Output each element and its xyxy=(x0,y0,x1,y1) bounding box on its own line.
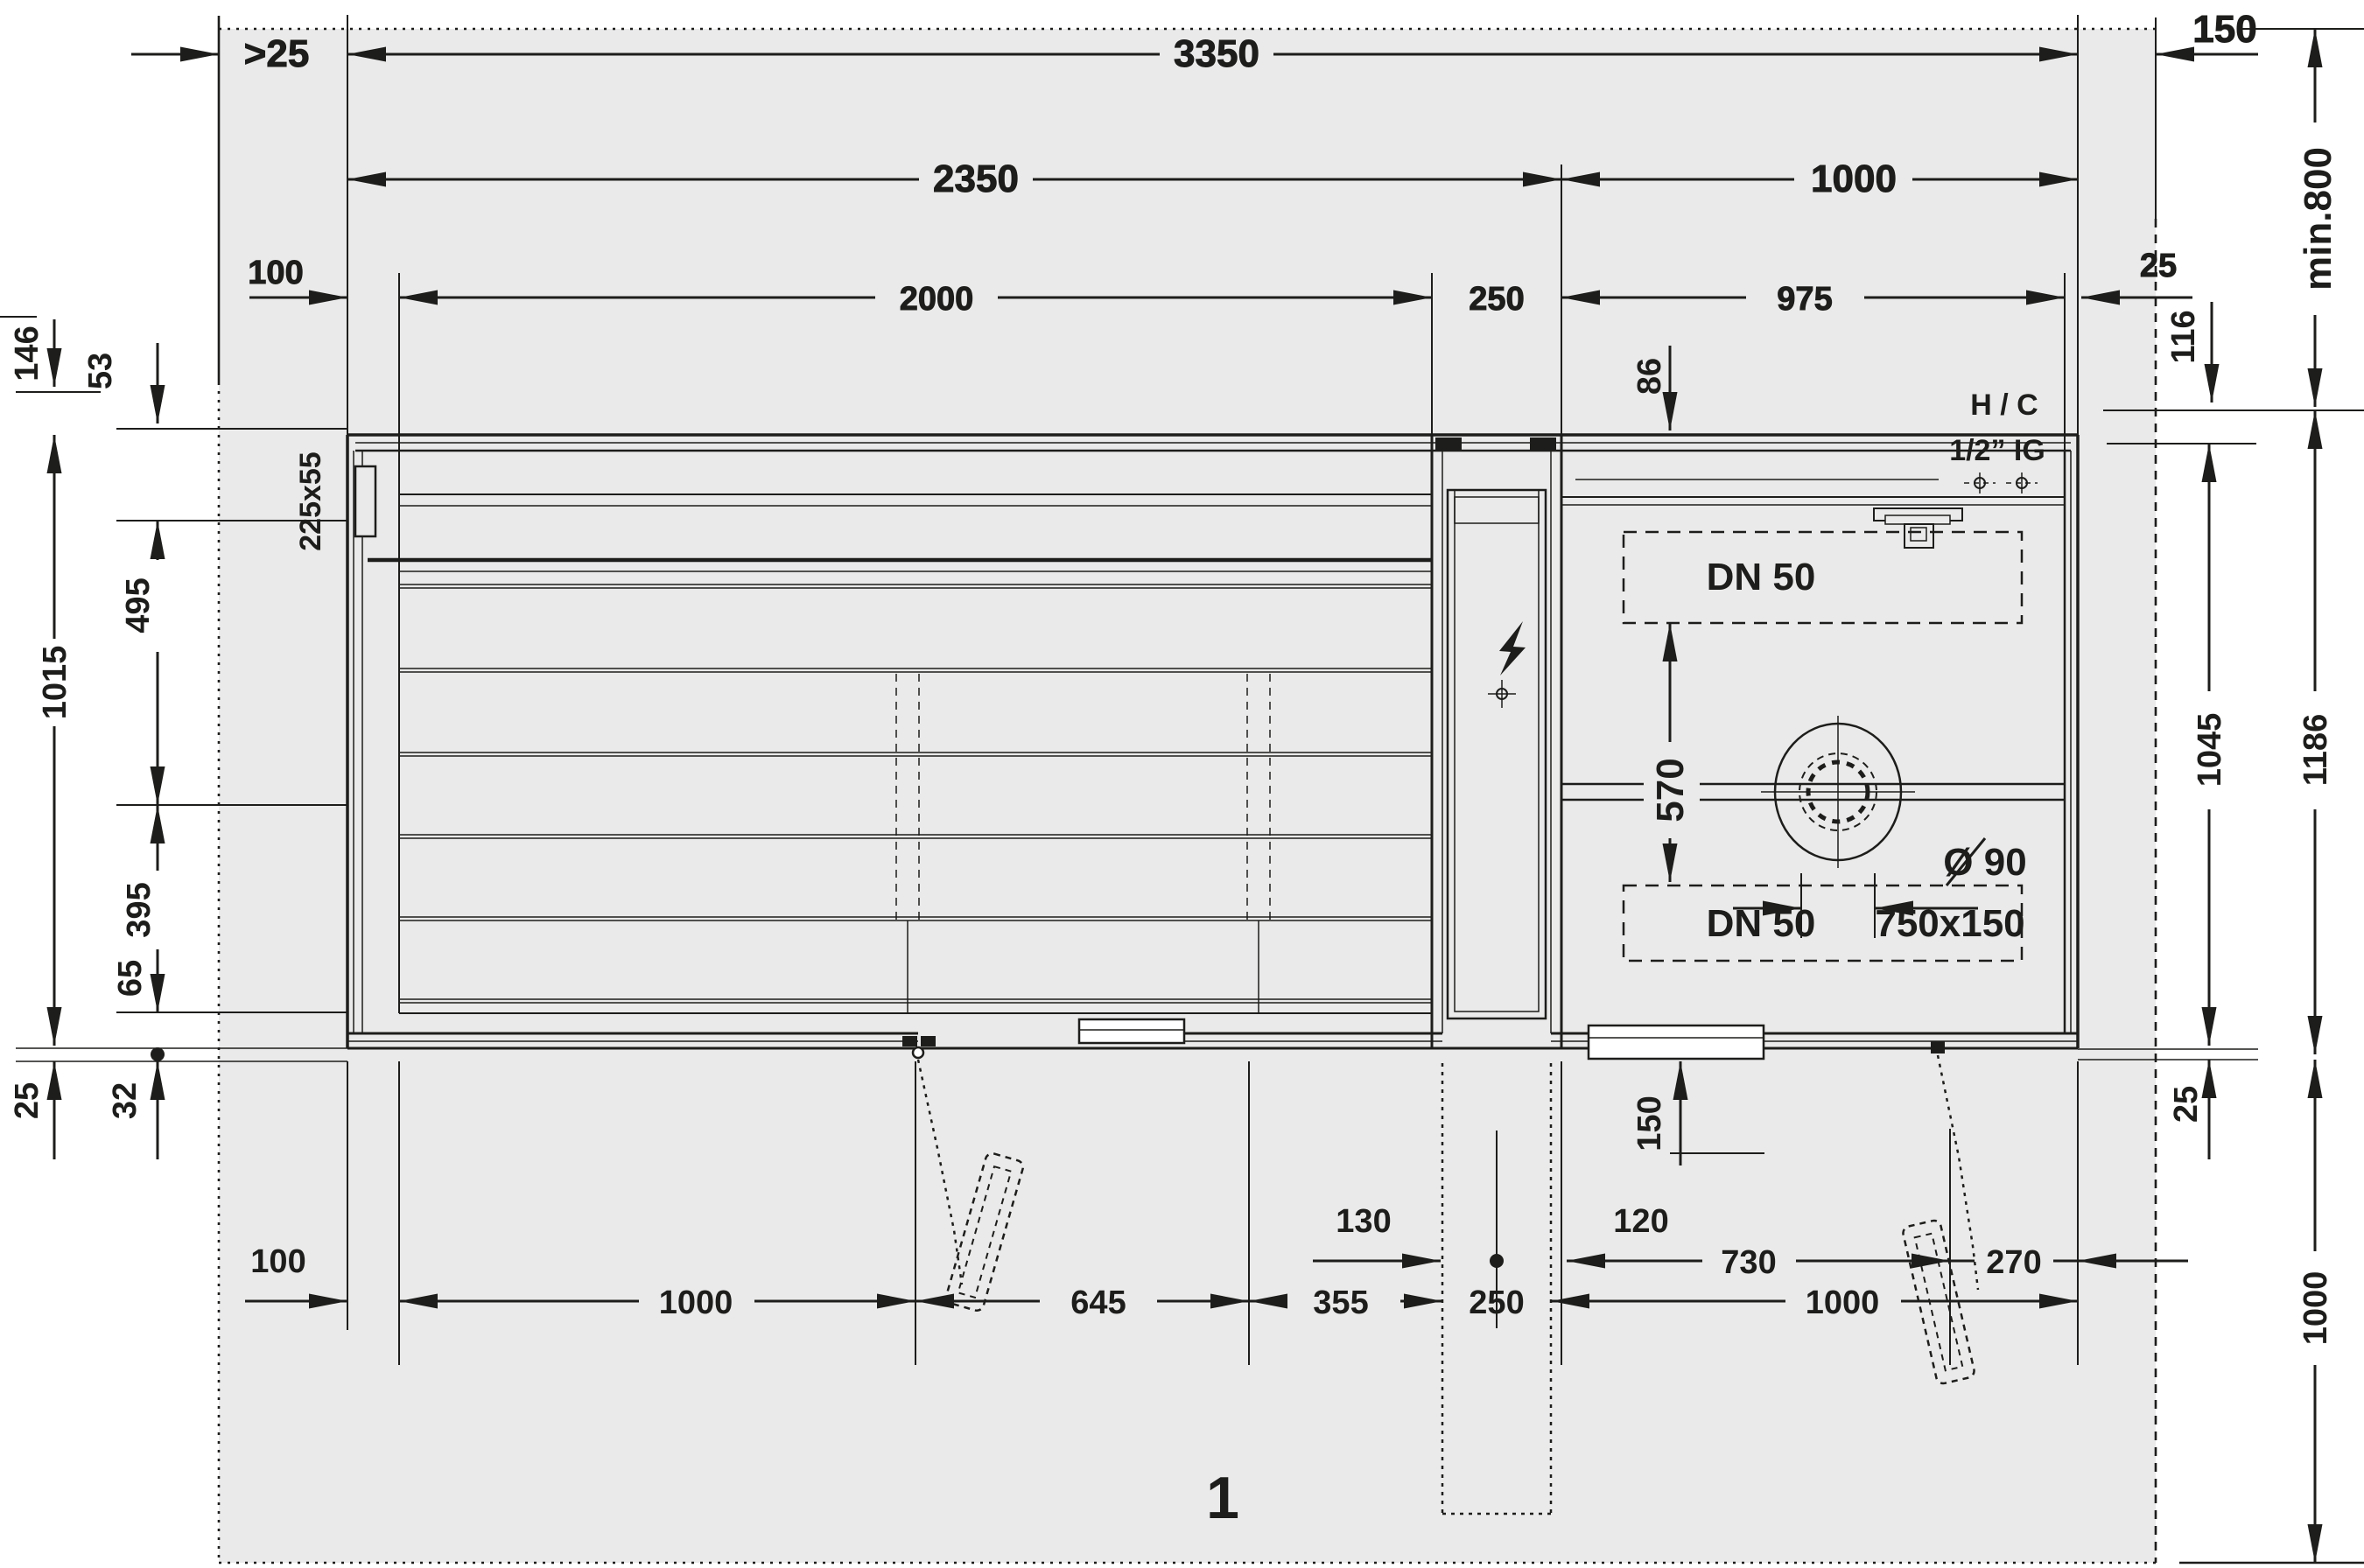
door-anchor-right xyxy=(1530,437,1556,450)
sauna-hinge-block-left xyxy=(902,1036,917,1046)
shower-hinge-block xyxy=(1931,1041,1945,1053)
dim-730-label: 730 xyxy=(1721,1244,1776,1281)
dim-32-label: 32 xyxy=(107,1082,144,1119)
sauna-door-threshold xyxy=(1079,1019,1184,1043)
dim-355-label: 355 xyxy=(1313,1284,1368,1321)
dim-1015-label: 1015 xyxy=(37,646,74,720)
dim-100b-label: 100 xyxy=(250,1243,305,1280)
dim-shower-inner-label: 975 xyxy=(1777,281,1832,318)
dim-495-label: 495 xyxy=(120,577,157,633)
figure-number: 1 xyxy=(1206,1465,1239,1531)
dim-shower-width-label: 1000 xyxy=(1811,157,1897,200)
dim-645-label: 645 xyxy=(1070,1284,1126,1321)
dim-25l-label: 25 xyxy=(9,1082,46,1119)
supply-label-ig: 1/2” IG xyxy=(1949,434,2045,467)
dim-120-label: 120 xyxy=(1613,1203,1668,1240)
drawing-page: >25 3350 150 2350 1000 100 2000 250 975 … xyxy=(0,0,2364,1568)
dim-total-width-label: 3350 xyxy=(1174,32,1259,75)
drain-zone-bottom-size: 750x150 xyxy=(1875,902,2024,945)
dim-1045-label: 1045 xyxy=(2192,713,2228,787)
dim-130-label: 130 xyxy=(1336,1203,1391,1240)
dim-wall-thickness-label: 25 xyxy=(2140,248,2177,284)
room-floor-area xyxy=(219,16,2156,1563)
wall-panel-225x55 xyxy=(355,466,375,536)
dim-door-width-label: 250 xyxy=(1469,281,1524,318)
dim-86-label: 86 xyxy=(1631,358,1668,395)
reference-dot-left xyxy=(151,1047,165,1061)
installation-plan-svg: >25 3350 150 2350 1000 100 2000 250 975 … xyxy=(0,0,2364,1568)
supply-label-hc: H / C xyxy=(1970,388,2038,422)
door-anchor-left xyxy=(1435,437,1462,450)
dim-250b-label: 250 xyxy=(1469,1284,1524,1321)
dim-53-label: 53 xyxy=(82,353,119,389)
dim-min800-label: min.800 xyxy=(2297,147,2339,290)
dim-65-label: 65 xyxy=(112,960,149,997)
sauna-hinge-pivot xyxy=(913,1047,923,1058)
floor-fill xyxy=(219,29,2156,1563)
panel-size-label: 225x55 xyxy=(294,451,327,550)
dim-270-label: 270 xyxy=(1986,1244,2041,1281)
dim-570-label: 570 xyxy=(1649,758,1692,822)
dim-1000br-label: 1000 xyxy=(2297,1271,2334,1346)
dim-116-label: 116 xyxy=(2165,310,2202,363)
drain-zone-top-label: DN 50 xyxy=(1707,556,1816,598)
sauna-hinge-block-right xyxy=(921,1036,936,1046)
corridor-reference-dot xyxy=(1490,1254,1504,1268)
dim-150-label: 150 xyxy=(1631,1095,1668,1151)
dim-25br-label: 25 xyxy=(2168,1086,2205,1123)
dim-wall-offset-label: 100 xyxy=(248,255,303,291)
dim-sauna-width-label: 2350 xyxy=(933,157,1019,200)
dim-1000a-label: 1000 xyxy=(659,1284,733,1321)
drain-zone-bottom-label: DN 50 xyxy=(1707,902,1816,945)
dim-1186-label: 1186 xyxy=(2297,714,2334,786)
dim-1000b-label: 1000 xyxy=(1806,1284,1880,1321)
dim-bench-length-label: 2000 xyxy=(900,281,974,318)
dim-395-label: 395 xyxy=(121,882,158,937)
dim-146-label: 146 xyxy=(9,325,46,381)
dim-clearance-left-label: >25 xyxy=(244,32,310,75)
dim-drain-diameter-label: Ø 90 xyxy=(1943,841,2026,884)
shower-threshold xyxy=(1589,1025,1764,1059)
